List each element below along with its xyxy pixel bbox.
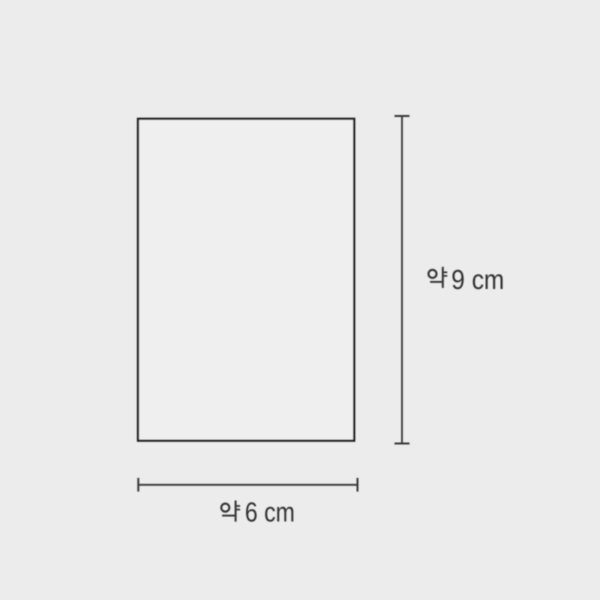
svg-text:9 cm: 9 cm [451, 264, 504, 295]
svg-text:6 cm: 6 cm [245, 496, 295, 527]
